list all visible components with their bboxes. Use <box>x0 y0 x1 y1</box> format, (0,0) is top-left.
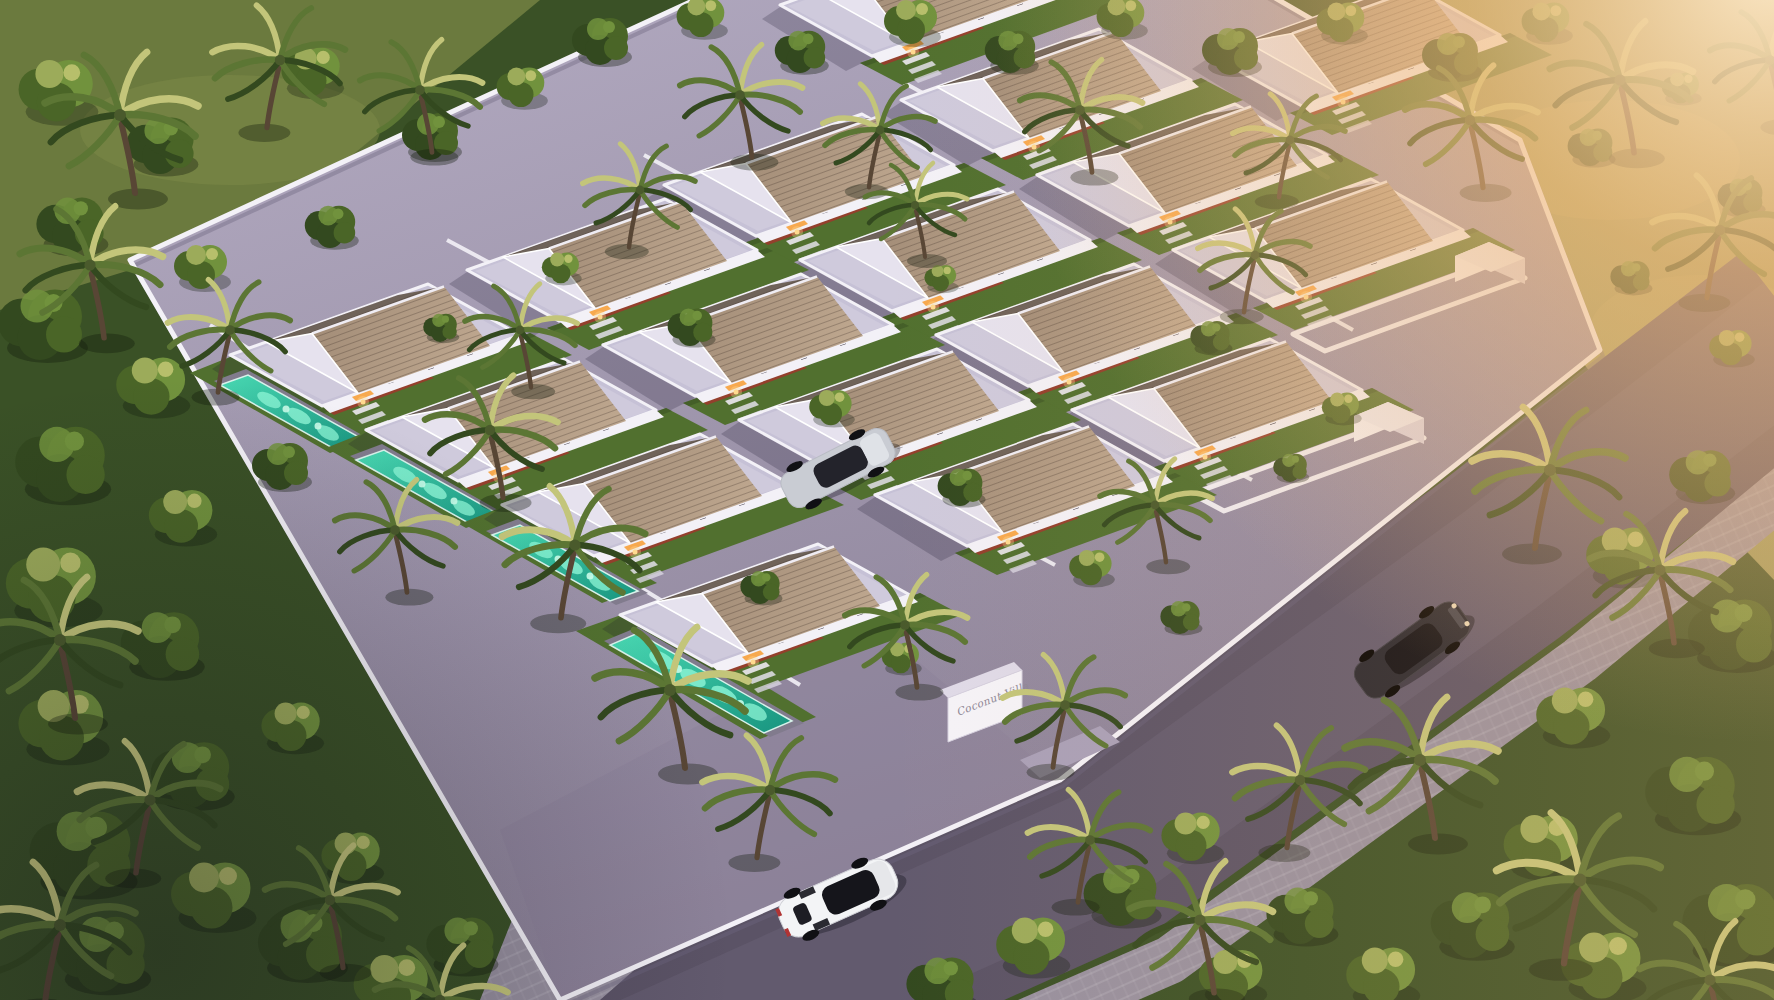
aerial-render: Coconut Villa <box>0 0 1774 1000</box>
sunset-glow <box>0 0 1774 1000</box>
aerial-render-canvas: Coconut Villa <box>0 0 1774 1000</box>
